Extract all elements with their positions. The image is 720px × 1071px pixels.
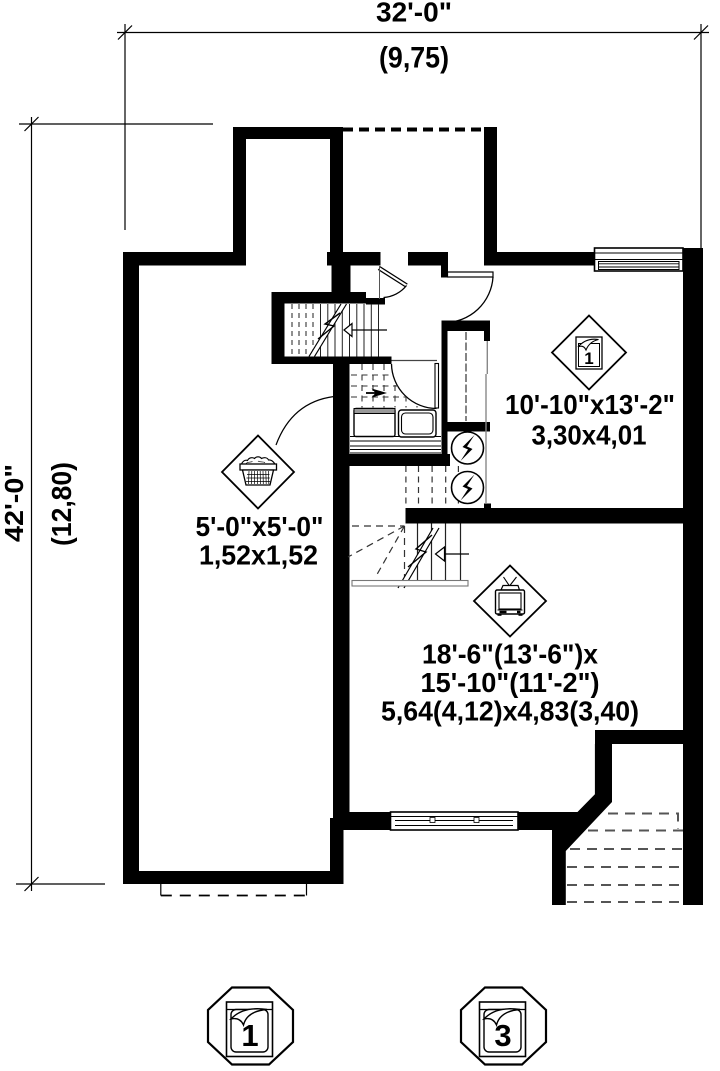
svg-text:1: 1	[584, 349, 593, 368]
svg-text:10'-10"x13'-2": 10'-10"x13'-2"	[505, 389, 675, 420]
svg-text:18'-6"(13'-6")x: 18'-6"(13'-6")x	[422, 639, 598, 670]
svg-text:42'-0": 42'-0"	[0, 464, 29, 542]
svg-text:1,52x1,52: 1,52x1,52	[199, 540, 318, 571]
svg-text:3,30x4,01: 3,30x4,01	[532, 420, 647, 451]
svg-text:(9,75): (9,75)	[379, 42, 449, 75]
svg-text:3: 3	[494, 1018, 511, 1053]
svg-text:5,64(4,12)x4,83(3,40): 5,64(4,12)x4,83(3,40)	[381, 696, 639, 727]
svg-text:(12,80): (12,80)	[46, 462, 77, 546]
svg-text:1: 1	[241, 1018, 258, 1053]
svg-text:15'-10"(11'-2"): 15'-10"(11'-2")	[421, 667, 600, 698]
svg-text:32'-0": 32'-0"	[376, 0, 452, 28]
svg-text:5'-0"x5'-0": 5'-0"x5'-0"	[196, 511, 324, 542]
